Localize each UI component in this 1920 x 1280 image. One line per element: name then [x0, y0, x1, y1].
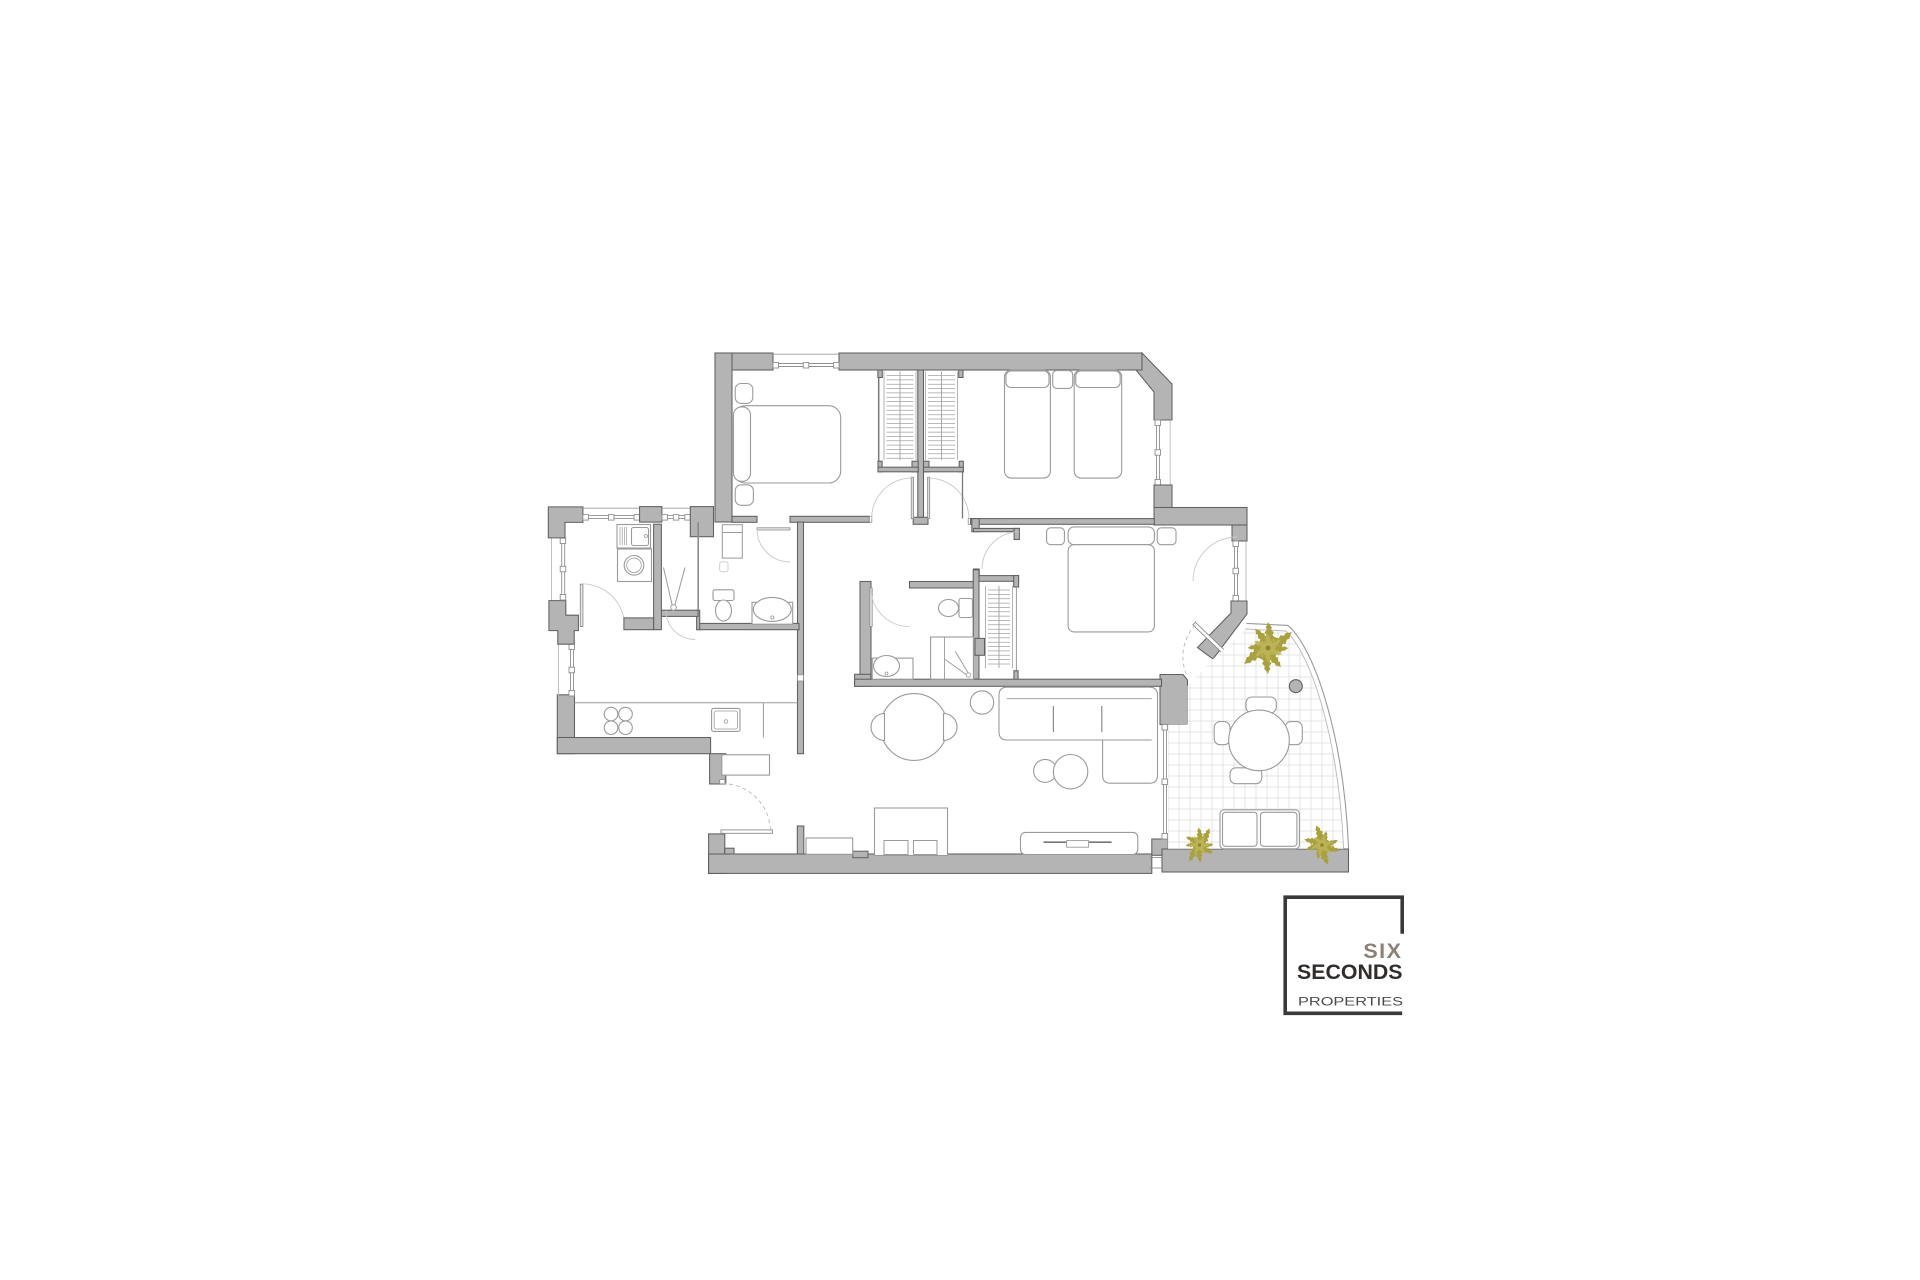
svg-text:PROPERTIES: PROPERTIES	[1298, 997, 1403, 1009]
svg-text:SECONDS: SECONDS	[1297, 960, 1403, 984]
